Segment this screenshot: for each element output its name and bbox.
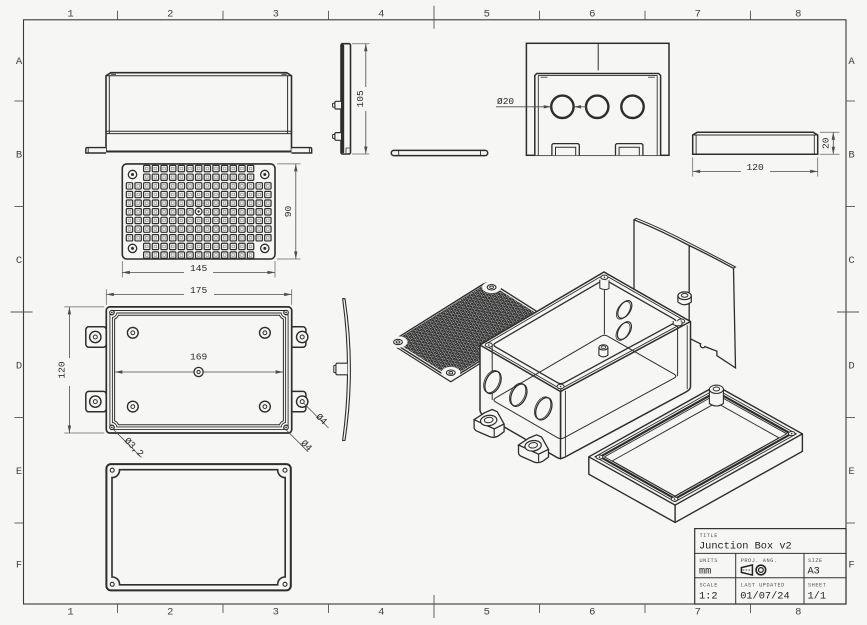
svg-text:1:2: 1:2 (699, 590, 718, 602)
svg-text:5: 5 (484, 607, 490, 619)
svg-text:169: 169 (190, 351, 208, 362)
svg-text:3: 3 (273, 9, 279, 21)
svg-text:UNITS: UNITS (700, 558, 718, 564)
svg-text:7: 7 (695, 607, 701, 619)
svg-text:120: 120 (747, 162, 765, 173)
svg-text:A: A (16, 56, 23, 68)
svg-text:A3: A3 (808, 566, 820, 578)
svg-text:6: 6 (589, 607, 595, 619)
svg-text:90: 90 (283, 206, 294, 218)
svg-text:Junction Box v2: Junction Box v2 (699, 541, 792, 553)
svg-text:A: A (848, 56, 855, 68)
svg-text:E: E (848, 466, 854, 478)
svg-text:D: D (16, 361, 22, 373)
svg-text:5: 5 (484, 9, 490, 21)
svg-text:6: 6 (589, 9, 595, 21)
svg-text:F: F (848, 559, 854, 571)
svg-text:TITLE: TITLE (700, 533, 718, 539)
svg-text:8: 8 (795, 607, 801, 619)
svg-text:2: 2 (167, 9, 173, 21)
svg-text:4: 4 (378, 9, 384, 21)
svg-text:1: 1 (67, 9, 73, 21)
svg-text:PROJ. ANG.: PROJ. ANG. (741, 558, 778, 564)
svg-text:F: F (16, 559, 22, 571)
svg-text:2: 2 (167, 607, 173, 619)
svg-text:20: 20 (821, 137, 832, 149)
svg-text:mm: mm (699, 566, 711, 578)
svg-text:7: 7 (695, 9, 701, 21)
svg-text:B: B (848, 150, 854, 162)
svg-text:C: C (16, 255, 22, 267)
svg-text:B: B (16, 150, 22, 162)
svg-text:01/07/24: 01/07/24 (740, 590, 789, 602)
svg-text:8: 8 (795, 9, 801, 21)
svg-text:LAST UPDATED: LAST UPDATED (741, 582, 785, 588)
svg-text:105: 105 (355, 90, 366, 108)
svg-text:120: 120 (57, 361, 68, 379)
svg-text:1: 1 (67, 607, 73, 619)
svg-text:SCALE: SCALE (700, 582, 718, 588)
svg-text:E: E (16, 466, 22, 478)
svg-text:4: 4 (378, 607, 384, 619)
svg-text:175: 175 (190, 285, 208, 296)
svg-text:D: D (848, 361, 854, 373)
svg-text:C: C (848, 255, 854, 267)
svg-text:1/1: 1/1 (808, 590, 827, 602)
svg-text:SIZE: SIZE (808, 558, 823, 564)
svg-text:145: 145 (190, 263, 208, 274)
svg-text:Ø20: Ø20 (497, 96, 514, 107)
svg-text:SHEET: SHEET (808, 582, 826, 588)
svg-text:3: 3 (273, 607, 279, 619)
